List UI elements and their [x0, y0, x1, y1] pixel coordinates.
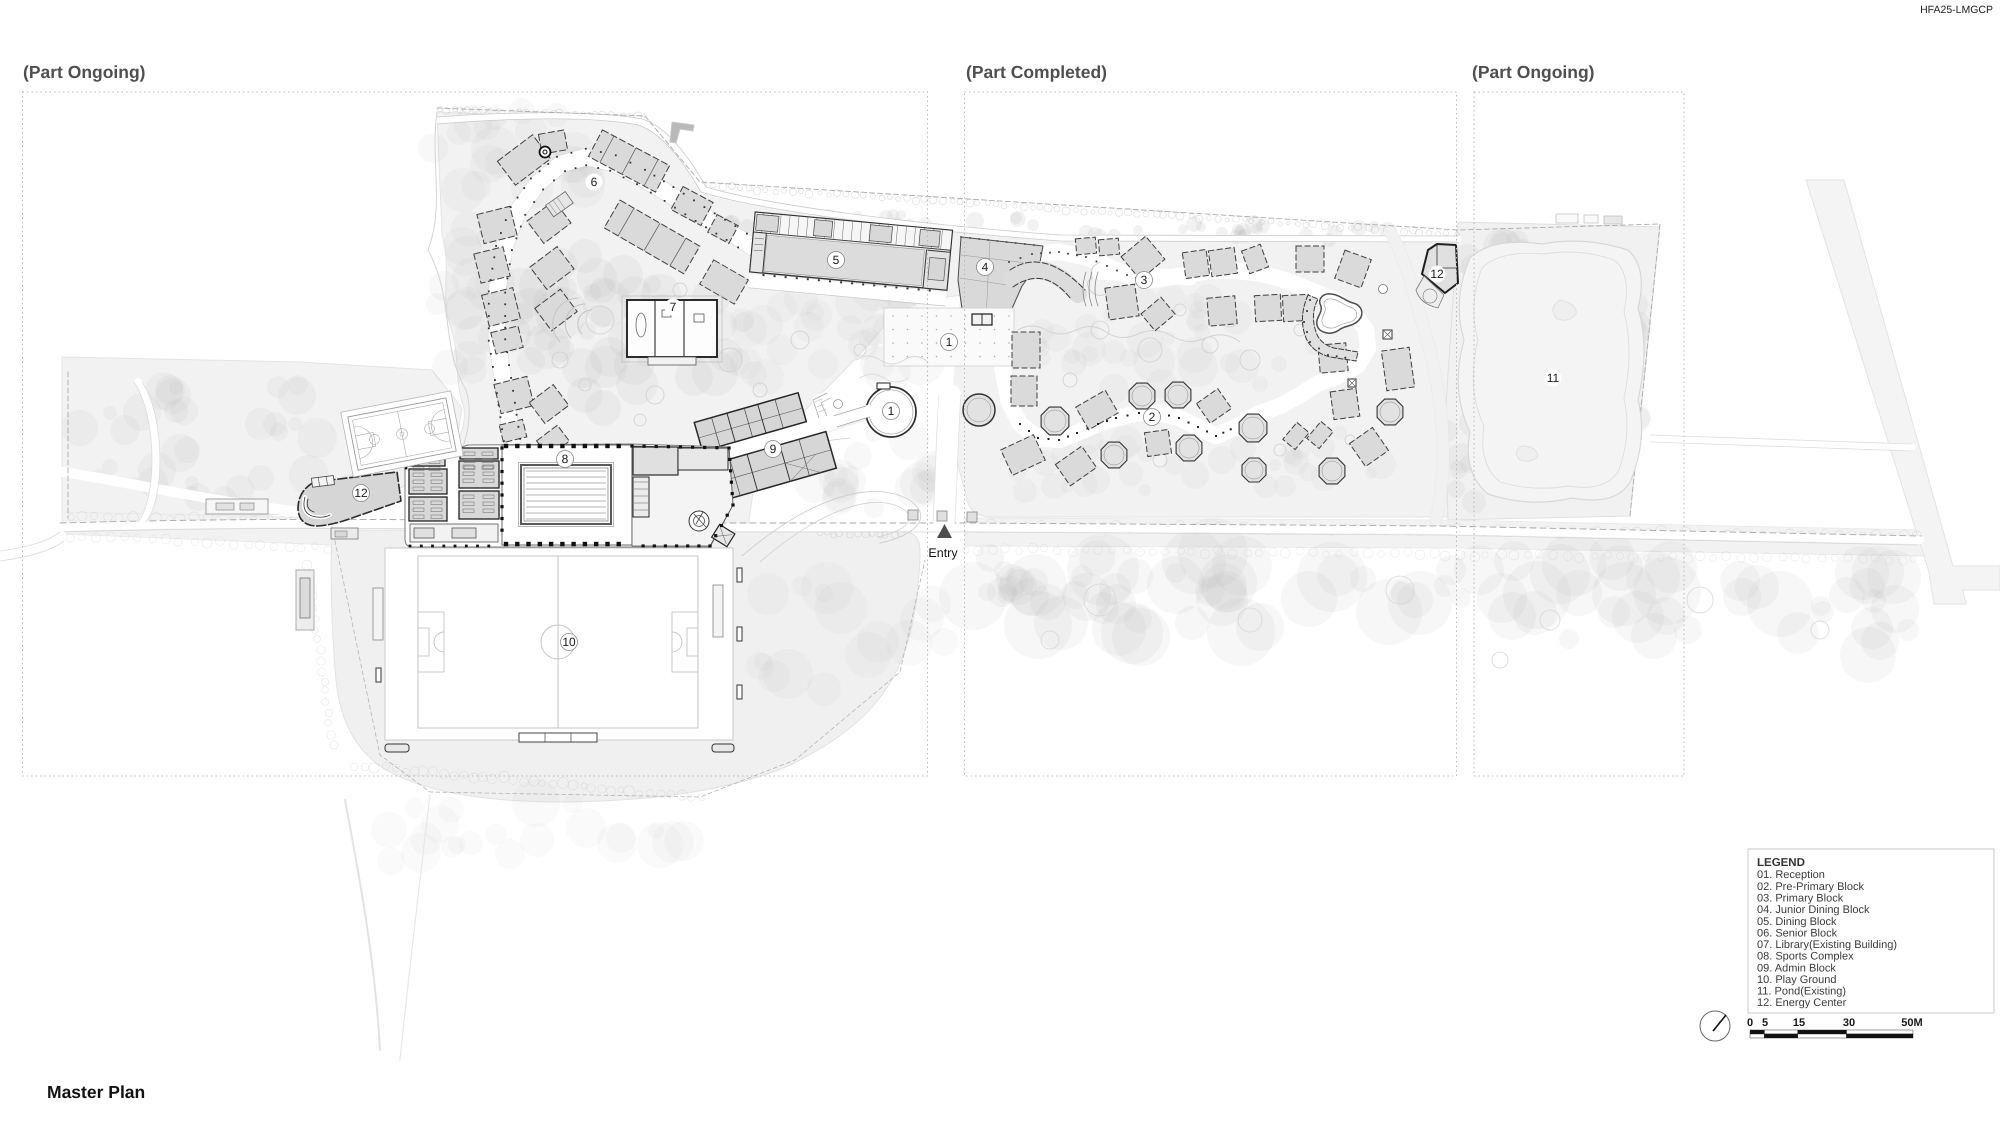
- svg-text:1: 1: [888, 404, 895, 418]
- svg-text:09. Admin Block: 09. Admin Block: [1757, 962, 1836, 974]
- svg-text:04. Junior Dining Block: 04. Junior Dining Block: [1757, 904, 1870, 916]
- svg-text:6: 6: [591, 175, 598, 189]
- svg-text:12: 12: [354, 486, 368, 500]
- svg-text:06. Senior Block: 06. Senior Block: [1757, 927, 1838, 939]
- svg-text:07. Library(Existing Building): 07. Library(Existing Building): [1757, 939, 1897, 951]
- svg-text:02. Pre-Primary Block: 02. Pre-Primary Block: [1757, 881, 1864, 893]
- svg-text:3: 3: [1141, 273, 1148, 287]
- svg-text:8: 8: [562, 452, 569, 466]
- svg-text:12: 12: [1430, 267, 1444, 281]
- svg-text:7: 7: [670, 300, 677, 314]
- svg-text:30: 30: [1843, 1017, 1855, 1029]
- svg-text:15: 15: [1793, 1017, 1805, 1029]
- svg-text:(Part Completed): (Part Completed): [966, 62, 1107, 82]
- svg-text:03. Primary Block: 03. Primary Block: [1757, 892, 1844, 904]
- svg-text:01. Reception: 01. Reception: [1757, 869, 1825, 881]
- svg-text:11. Pond(Existing): 11. Pond(Existing): [1757, 986, 1846, 998]
- svg-text:(Part Ongoing): (Part Ongoing): [1472, 62, 1594, 82]
- svg-text:0: 0: [1747, 1017, 1753, 1029]
- svg-text:10. Play Ground: 10. Play Ground: [1757, 974, 1837, 986]
- svg-text:11: 11: [1547, 371, 1560, 385]
- svg-text:HFA25-LMGCP: HFA25-LMGCP: [1920, 4, 1993, 16]
- svg-text:5: 5: [1762, 1017, 1768, 1029]
- svg-text:08. Sports Complex: 08. Sports Complex: [1757, 951, 1854, 963]
- svg-text:10: 10: [562, 635, 576, 649]
- svg-text:5: 5: [833, 253, 840, 267]
- svg-text:2: 2: [1149, 410, 1156, 424]
- svg-text:05. Dining Block: 05. Dining Block: [1757, 916, 1837, 928]
- svg-text:12. Energy Center: 12. Energy Center: [1757, 997, 1847, 1009]
- svg-text:1: 1: [946, 335, 953, 349]
- svg-text:LEGEND: LEGEND: [1757, 857, 1805, 869]
- svg-text:4: 4: [982, 260, 989, 274]
- svg-text:9: 9: [770, 442, 777, 456]
- svg-text:Entry: Entry: [928, 546, 958, 560]
- svg-text:50M: 50M: [1901, 1017, 1922, 1029]
- svg-text:Master Plan: Master Plan: [47, 1082, 145, 1102]
- svg-text:(Part Ongoing): (Part Ongoing): [23, 62, 145, 82]
